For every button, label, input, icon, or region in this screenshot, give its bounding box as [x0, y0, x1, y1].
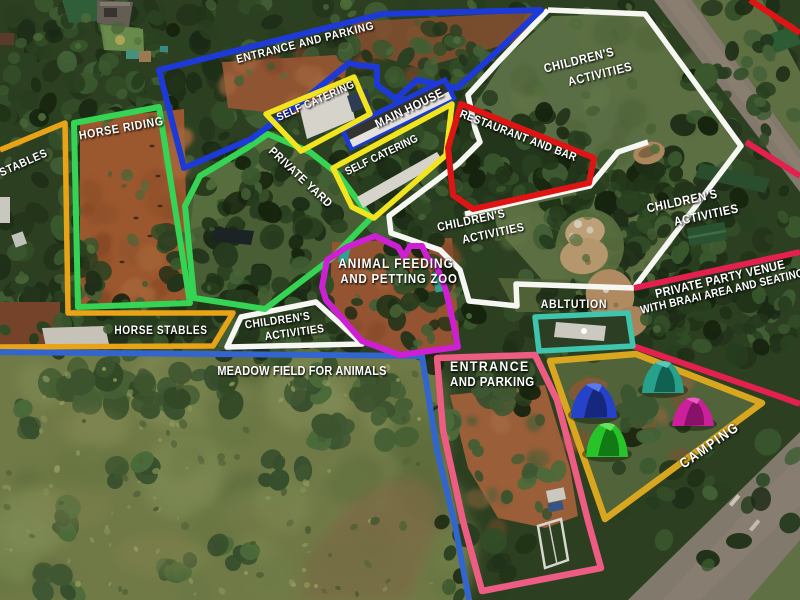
svg-text:ANIMAL FEEDING: ANIMAL FEEDING — [338, 255, 454, 271]
svg-text:MEADOW FIELD FOR ANIMALS: MEADOW FIELD FOR ANIMALS — [217, 364, 386, 378]
svg-text:AND PARKING: AND PARKING — [450, 374, 535, 389]
svg-text:HORSE STABLES: HORSE STABLES — [114, 324, 207, 337]
svg-text:ABLTUTION: ABLTUTION — [541, 298, 608, 311]
svg-text:AND PETTING ZOO: AND PETTING ZOO — [340, 271, 457, 286]
svg-text:ENTRANCE: ENTRANCE — [450, 358, 530, 374]
